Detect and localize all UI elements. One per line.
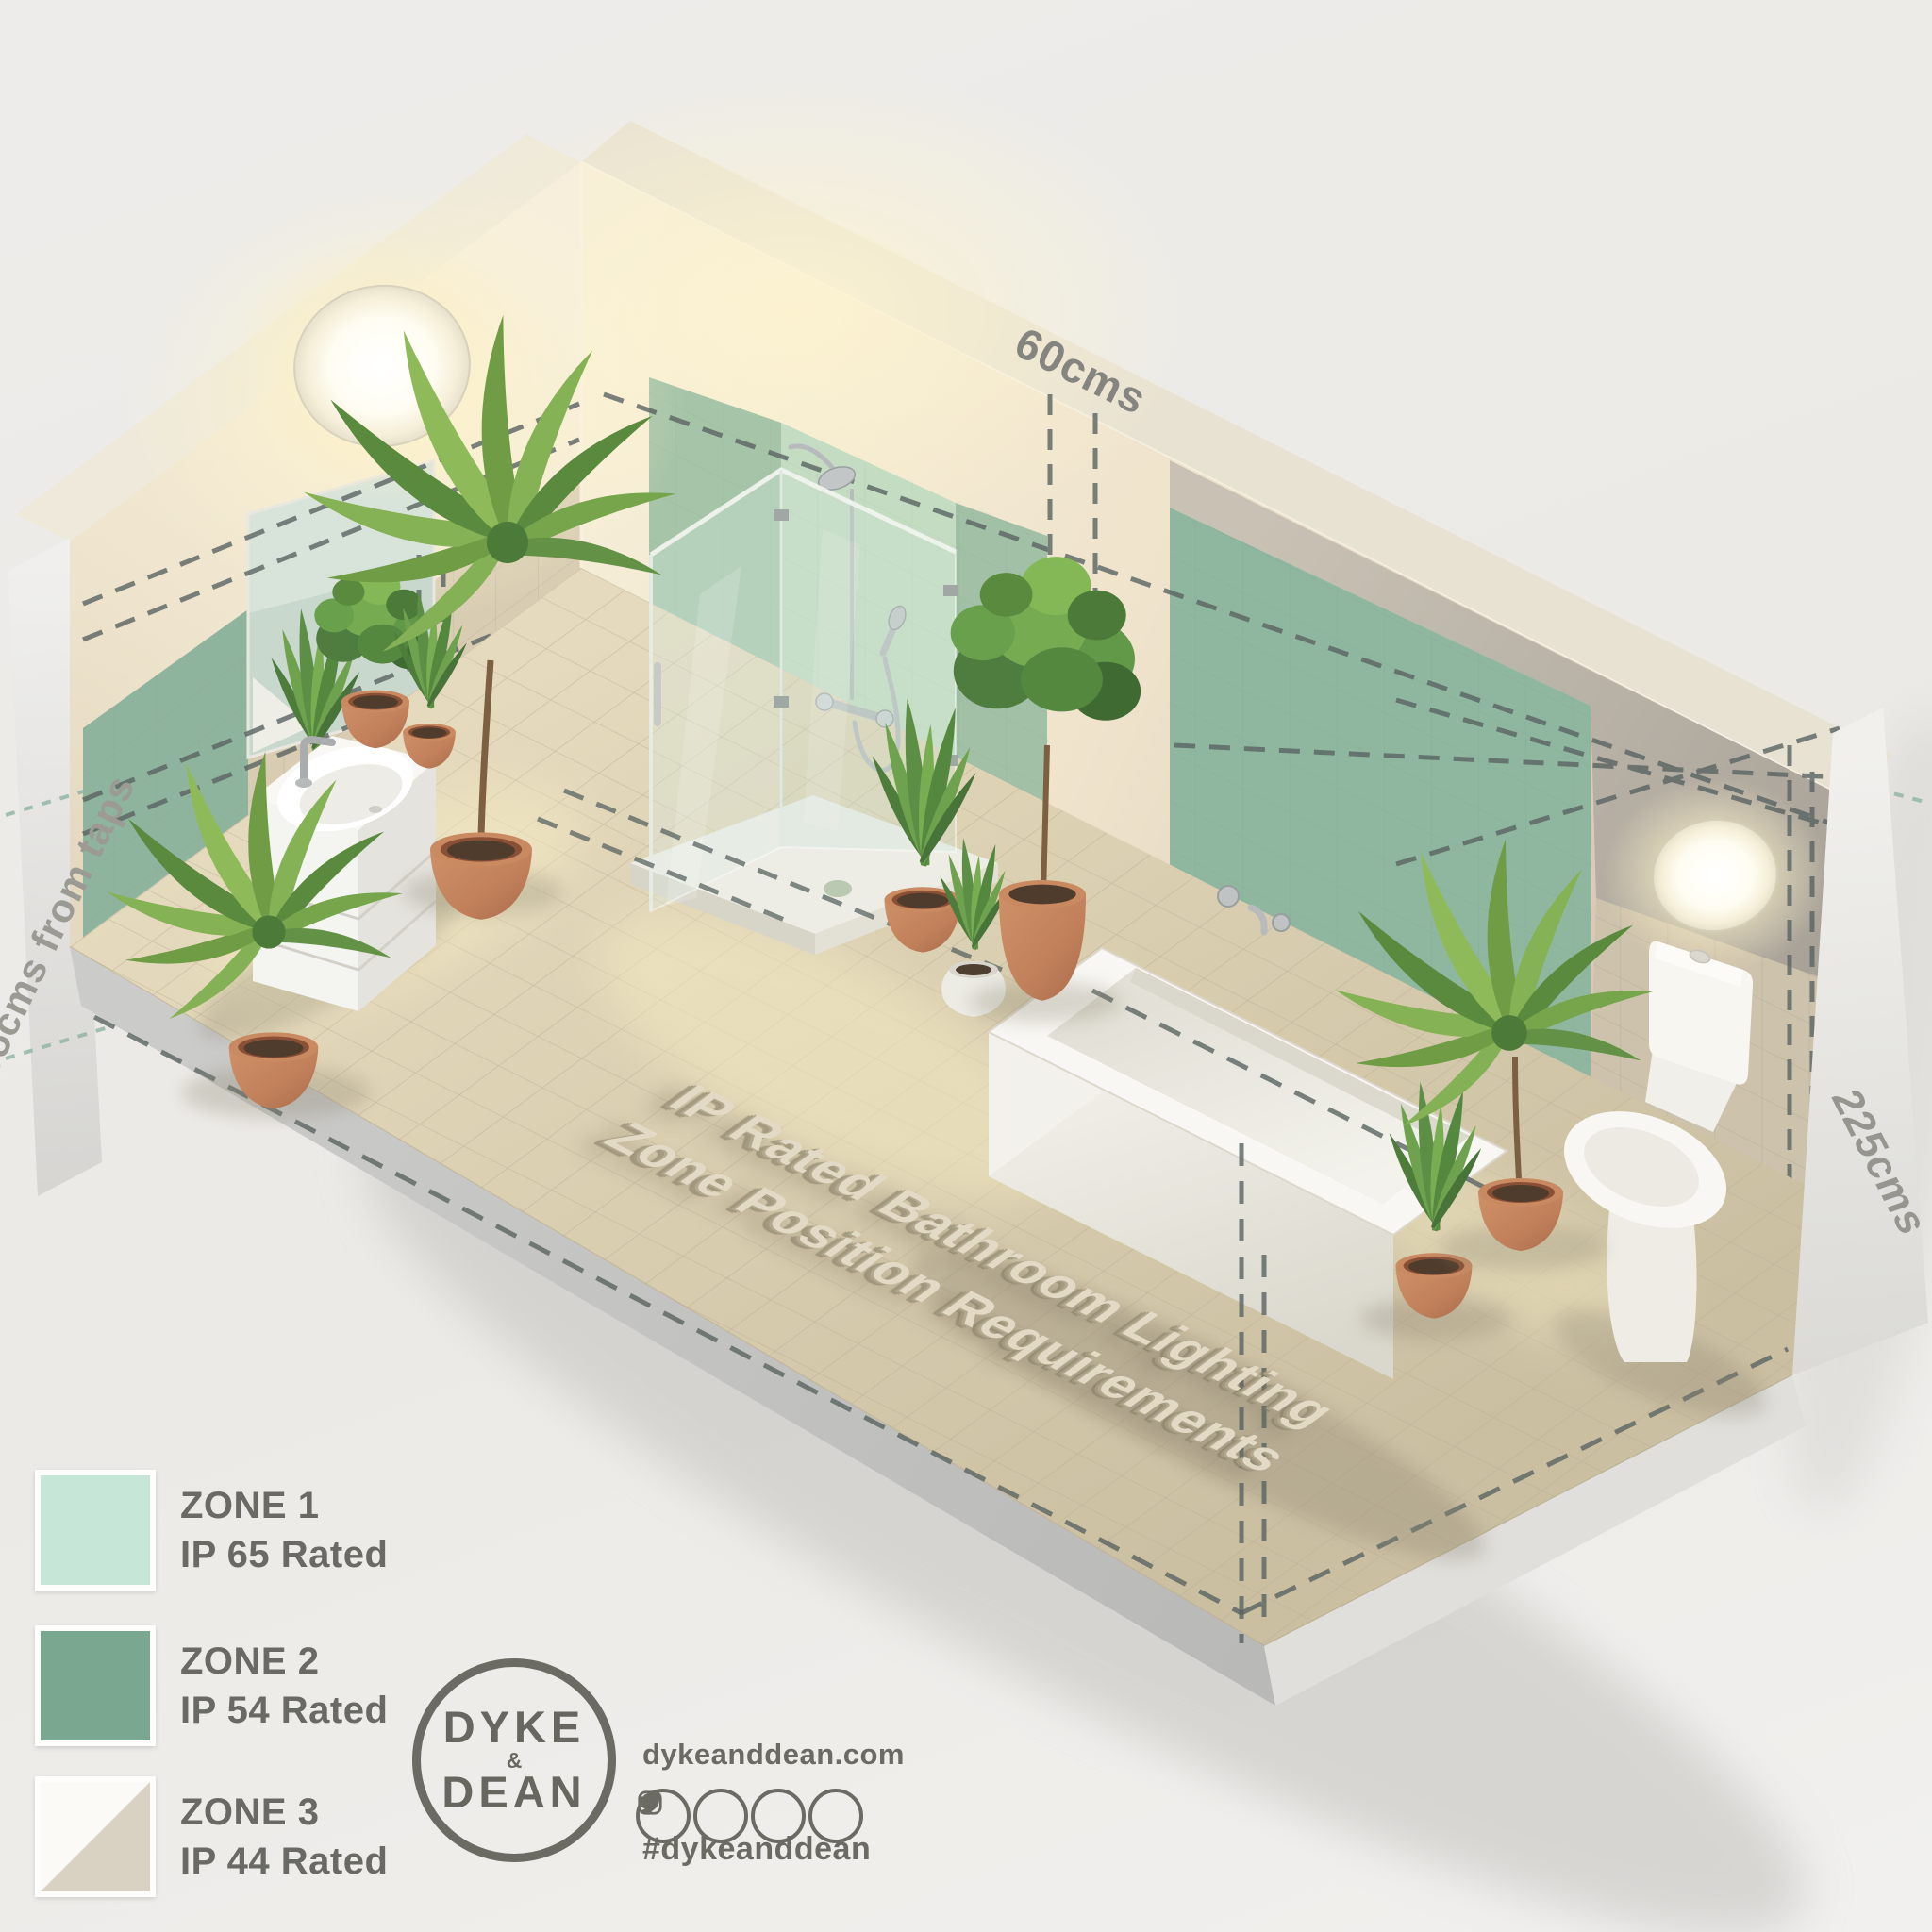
zone-3-rating: IP 44 Rated bbox=[180, 1837, 388, 1886]
bath-tap bbox=[1218, 886, 1239, 907]
logo-text-dyke: DYKE bbox=[443, 1707, 586, 1749]
legend-item-zone3: ZONE 3 IP 44 Rated bbox=[35, 1776, 388, 1897]
zone-2-label: ZONE 2 bbox=[180, 1637, 388, 1686]
zone-3-swatch bbox=[35, 1776, 156, 1897]
zone-2-swatch bbox=[35, 1625, 156, 1746]
legend-item-zone1: ZONE 1 IP 65 Rated bbox=[35, 1470, 388, 1591]
zone-1-swatch bbox=[35, 1470, 156, 1591]
zone-1-rating: IP 65 Rated bbox=[180, 1530, 388, 1579]
bath-tap bbox=[1273, 914, 1290, 931]
zone-1-label: ZONE 1 bbox=[180, 1481, 388, 1530]
hashtag: #dykeanddean bbox=[642, 1831, 871, 1868]
dyke-and-dean-logo: DYKE & DEAN bbox=[412, 1658, 616, 1862]
zone-2-rating: IP 54 Rated bbox=[180, 1686, 388, 1735]
wall-light-right bbox=[1602, 776, 1828, 974]
zone-3-label: ZONE 3 bbox=[180, 1788, 388, 1837]
legend-item-zone2: ZONE 2 IP 54 Rated bbox=[35, 1625, 388, 1746]
website-link[interactable]: dykeanddean.com bbox=[642, 1738, 905, 1772]
logo-text-dean: DEAN bbox=[441, 1772, 586, 1814]
bathroom-lighting-infographic: IP Rated Bathroom Lighting Zone Position… bbox=[0, 0, 1932, 1932]
